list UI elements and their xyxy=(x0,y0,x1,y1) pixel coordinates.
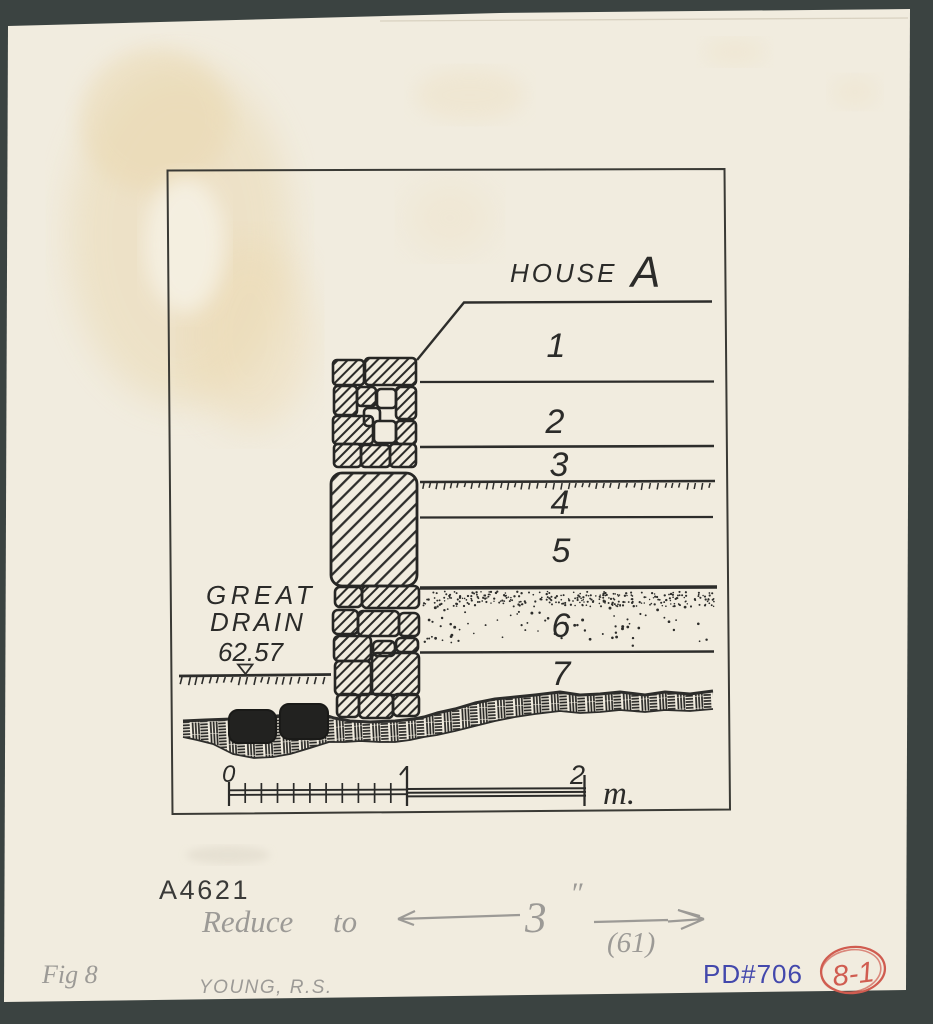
svg-text:5: 5 xyxy=(552,532,571,570)
svg-text:Fig 8: Fig 8 xyxy=(41,960,98,989)
svg-text:2: 2 xyxy=(545,403,565,441)
svg-text:A: A xyxy=(628,248,660,297)
svg-text:HOUSE: HOUSE xyxy=(510,258,617,288)
svg-text:″: ″ xyxy=(570,877,583,910)
svg-text:(61): (61) xyxy=(607,927,655,959)
svg-text:1: 1 xyxy=(547,327,566,365)
svg-text:DRAIN: DRAIN xyxy=(210,607,306,637)
svg-text:8-1: 8-1 xyxy=(831,956,877,993)
svg-text:2: 2 xyxy=(569,760,585,790)
svg-text:7: 7 xyxy=(552,655,572,693)
svg-text:Reduce to: Reduce to xyxy=(201,904,357,939)
svg-text:GREAT: GREAT xyxy=(206,580,316,610)
svg-text:3: 3 xyxy=(550,446,569,484)
svg-text:3: 3 xyxy=(524,895,547,942)
svg-text:6: 6 xyxy=(552,607,571,645)
svg-text:YOUNG, R.S.: YOUNG, R.S. xyxy=(199,977,333,998)
svg-text:A4621: A4621 xyxy=(159,875,250,905)
svg-text:PD#706: PD#706 xyxy=(703,959,803,989)
svg-text:62.57: 62.57 xyxy=(218,637,285,667)
svg-text:4: 4 xyxy=(551,484,570,522)
svg-text:m.: m. xyxy=(603,776,635,812)
svg-text:0: 0 xyxy=(222,761,236,788)
